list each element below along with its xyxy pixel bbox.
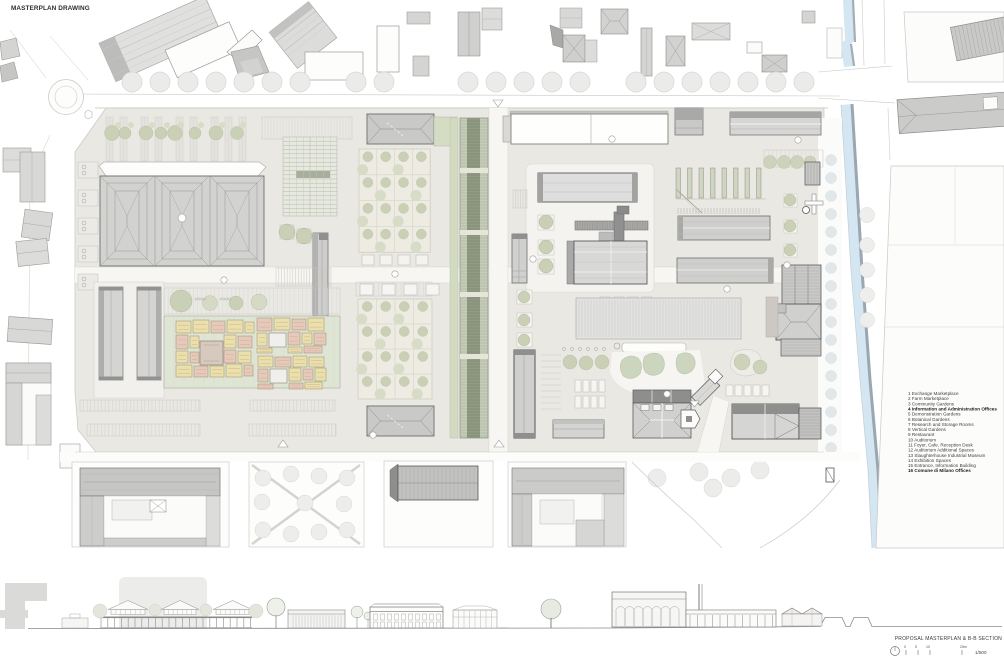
svg-text:16 Comune di Milano Offices: 16 Comune di Milano Offices <box>908 468 971 473</box>
svg-text:5: 5 <box>915 645 917 649</box>
svg-text:PROPOSAL MASTERPLAN & B-B SECT: PROPOSAL MASTERPLAN & B-B SECTION <box>895 636 1002 642</box>
svg-text:0: 0 <box>904 645 906 649</box>
svg-text:1/500: 1/500 <box>975 650 987 655</box>
svg-text:MASTERPLAN DRAWING: MASTERPLAN DRAWING <box>11 5 90 12</box>
svg-text:25m: 25m <box>960 645 967 649</box>
svg-text:10: 10 <box>926 645 930 649</box>
